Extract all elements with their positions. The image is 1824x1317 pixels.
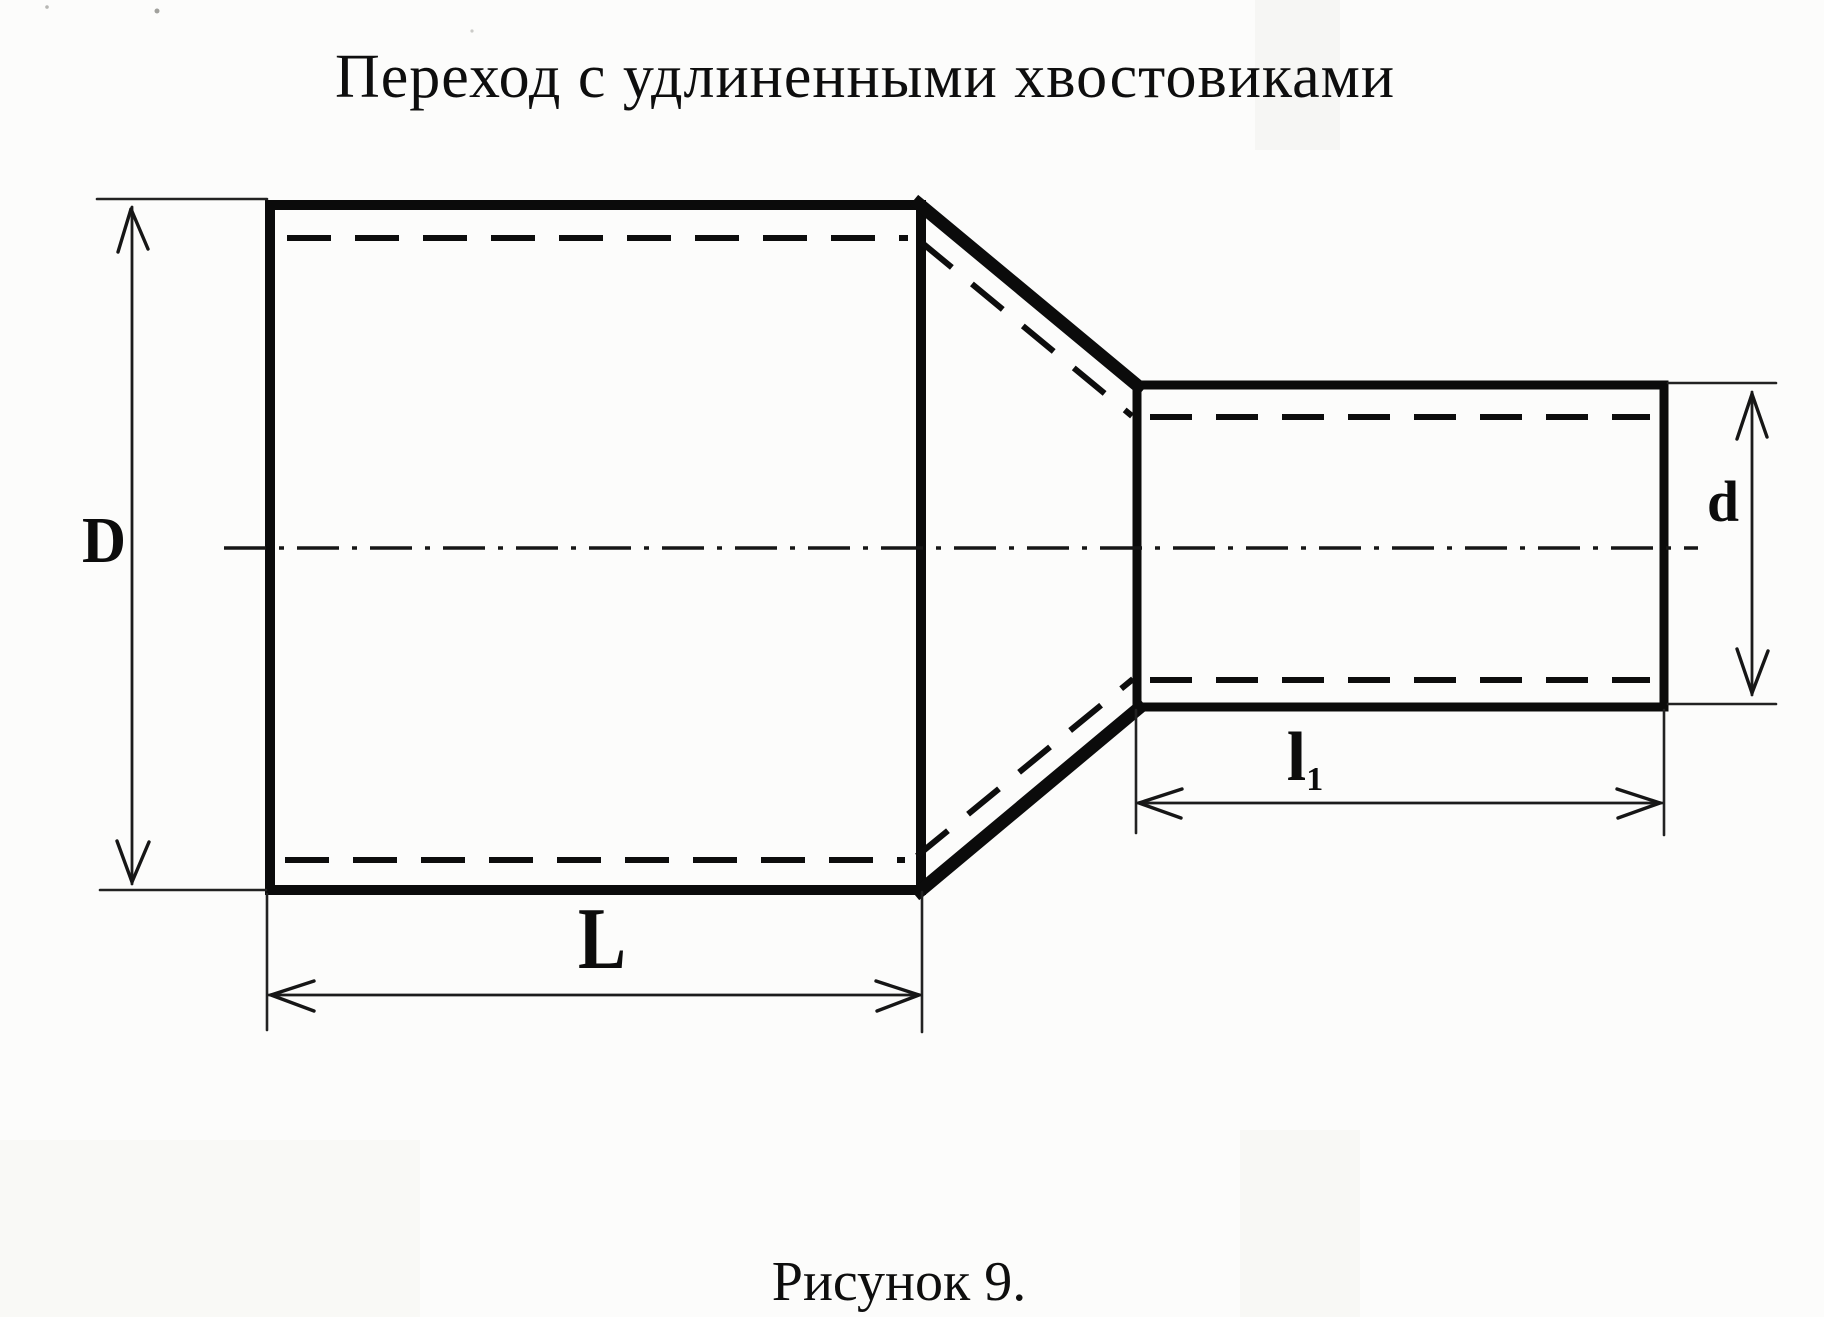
scan-speck-2	[45, 5, 49, 9]
reducer-technical-drawing: Переход с удлиненными хвостовиками	[0, 0, 1824, 1317]
dim-l1-label: l1	[1287, 719, 1323, 798]
figure-caption: Рисунок 9.	[772, 1251, 1026, 1313]
cone-inner-wall-bottom	[917, 679, 1133, 856]
cone-top-edge	[919, 204, 1138, 386]
dim-d-label: d	[1707, 469, 1739, 534]
dim-D-label: D	[82, 504, 126, 577]
dimension-l1: l1	[1136, 710, 1664, 835]
scan-speck-1	[155, 9, 160, 14]
dim-l1-label-subscript: 1	[1306, 761, 1323, 798]
scanned-drawing-page: Переход с удлиненными хвостовиками	[0, 0, 1824, 1317]
scan-speck-3	[470, 29, 473, 32]
cone-inner-wall-top	[921, 242, 1132, 416]
cone-bottom-edge	[920, 708, 1139, 891]
dim-l1-label-base: l	[1287, 719, 1306, 796]
dimension-d: d	[1668, 383, 1776, 704]
dimension-D: D	[82, 199, 267, 890]
scan-smudge-band-bottom	[1240, 1130, 1360, 1317]
scan-smudge-bottom-left	[0, 1140, 420, 1317]
small-pipe-body-outline	[1137, 385, 1664, 707]
dim-L-label: L	[578, 891, 626, 988]
dimension-L: L	[267, 891, 922, 1032]
scan-artifacts	[0, 0, 1360, 1317]
drawing-title: Переход с удлиненными хвостовиками	[335, 43, 1395, 111]
